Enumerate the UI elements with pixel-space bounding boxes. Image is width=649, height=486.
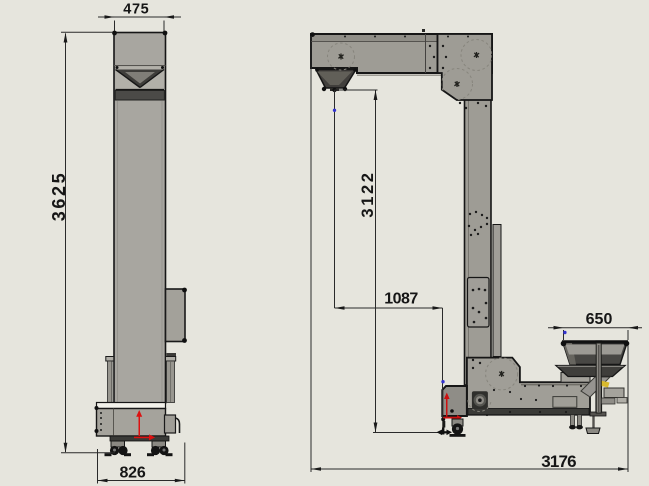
svg-text:3625: 3625 xyxy=(49,171,69,221)
svg-text:3122: 3122 xyxy=(359,170,377,217)
svg-text:650: 650 xyxy=(586,311,613,328)
svg-text:826: 826 xyxy=(119,465,145,482)
svg-text:475: 475 xyxy=(123,2,149,18)
svg-text:1087: 1087 xyxy=(384,291,418,308)
svg-text:3176: 3176 xyxy=(541,452,576,471)
